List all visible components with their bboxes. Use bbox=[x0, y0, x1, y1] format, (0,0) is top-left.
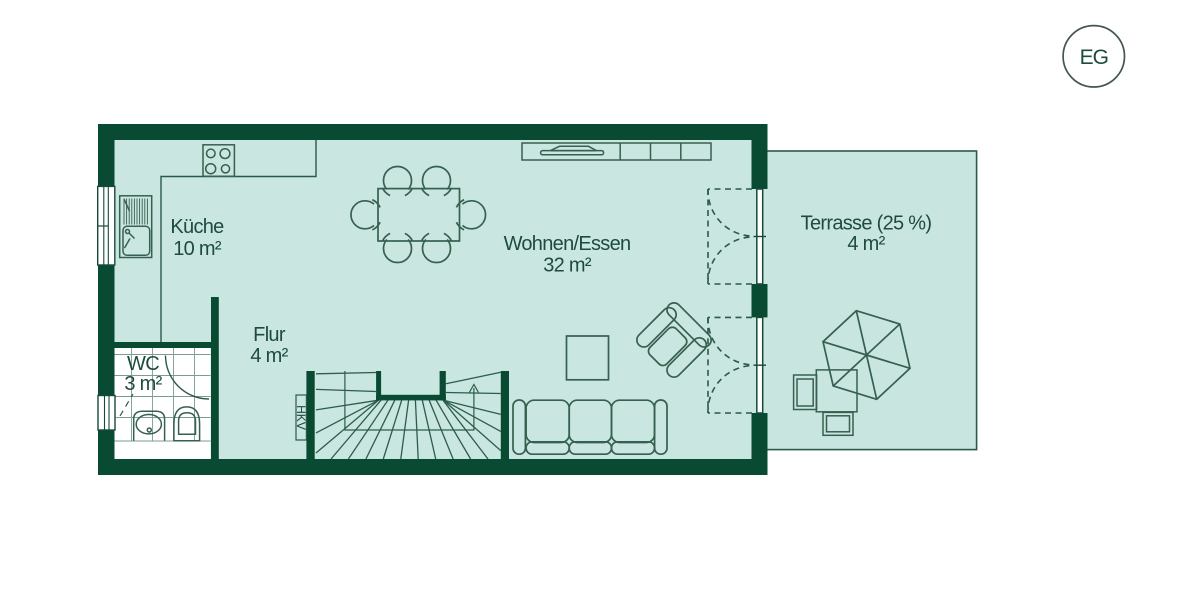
svg-text:32 m²: 32 m² bbox=[543, 255, 592, 277]
svg-text:EG: EG bbox=[1080, 46, 1108, 69]
svg-text:HKV: HKV bbox=[294, 405, 308, 430]
svg-text:Wohnen/Essen: Wohnen/Essen bbox=[504, 233, 631, 255]
svg-text:4 m²: 4 m² bbox=[847, 233, 885, 255]
svg-text:4 m²: 4 m² bbox=[250, 345, 288, 367]
svg-text:Terrasse (25 %): Terrasse (25 %) bbox=[801, 213, 932, 235]
svg-text:Küche: Küche bbox=[170, 216, 224, 238]
svg-text:3 m²: 3 m² bbox=[124, 373, 162, 395]
svg-text:10 m²: 10 m² bbox=[173, 238, 222, 260]
svg-text:WC: WC bbox=[127, 353, 159, 375]
svg-text:Flur: Flur bbox=[253, 324, 286, 346]
